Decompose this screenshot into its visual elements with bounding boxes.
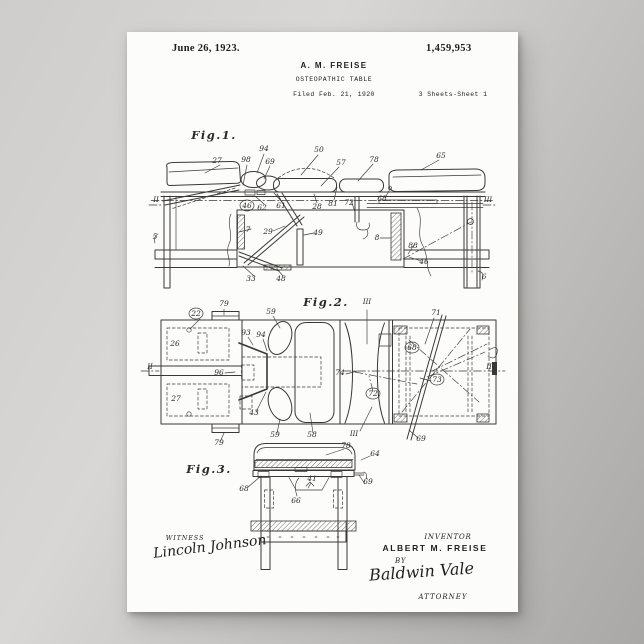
ref-numeral: 68 (239, 484, 249, 493)
figure-3-end-elevation (248, 444, 370, 570)
ref-numeral: 81 (328, 199, 338, 208)
ref-numeral: 73 (432, 375, 442, 384)
ref-numeral: 22 (190, 309, 201, 318)
ref-numeral: 96 (214, 368, 224, 377)
inventor-name: ALBERT M. FREISE (383, 543, 488, 553)
ref-numeral: 79 (219, 299, 229, 308)
ref-numeral: 57 (336, 158, 346, 167)
ref-numeral: 93 (241, 328, 251, 337)
ref-numeral: 69 (265, 157, 275, 166)
ref-numeral: 59 (270, 430, 280, 439)
figure-title: Fig.3. (185, 462, 232, 476)
ref-numeral: 26 (169, 339, 180, 348)
attorney-label: ATTORNEY (418, 593, 467, 601)
ref-numeral: 74 (335, 368, 345, 377)
ref-numeral: 48 (275, 274, 286, 283)
ref-numeral: 69 (416, 434, 426, 443)
ref-numeral: 64 (370, 449, 380, 458)
ref-numeral: 27 (211, 156, 222, 165)
ref-numeral: 79 (214, 438, 224, 447)
ref-numeral: 72 (344, 198, 354, 207)
ref-numeral: 49 (312, 228, 323, 237)
ref-numeral: 98 (241, 155, 251, 164)
patent-drawing: Fig.1.2798946950577865IIIII4662612881726… (127, 32, 518, 612)
ref-numeral: II (146, 363, 153, 371)
ref-numeral: 94 (259, 144, 269, 153)
ref-numeral: III (349, 430, 359, 438)
ref-numeral: III (362, 298, 372, 306)
figure-1-side-elevation (149, 154, 497, 288)
ref-numeral: 69 (363, 477, 373, 486)
ref-numeral: 71 (431, 308, 441, 317)
ref-numeral: 28 (311, 202, 322, 211)
ref-numeral: 88 (408, 241, 418, 250)
ref-numeral: 27 (170, 394, 181, 403)
figure-title: Fig.1. (190, 128, 237, 142)
ref-numeral: 72 (368, 389, 378, 398)
figure-title: Fig.2. (302, 295, 349, 309)
ref-numeral: II (485, 363, 492, 371)
ref-numeral: 68 (377, 194, 387, 203)
ref-numeral: 7 (246, 225, 251, 234)
ref-numeral: 58 (307, 430, 317, 439)
ref-numeral: 68 (407, 343, 417, 352)
ref-numeral: 94 (256, 330, 266, 339)
ref-numeral: II (152, 196, 159, 204)
ref-numeral: 66 (291, 496, 301, 505)
ref-numeral: 65 (436, 151, 446, 160)
ref-numeral: 61 (276, 201, 286, 210)
product-photo-background: { "header": { "date": "June 26, 1923.", … (0, 0, 644, 644)
ref-numeral: 5 (153, 232, 158, 241)
patent-poster: June 26, 1923. 1,459,953 A. M. FREISE OS… (127, 32, 518, 612)
ref-numeral: 59 (266, 307, 276, 316)
ref-numeral: 6 (482, 272, 487, 281)
ref-numeral: 50 (314, 145, 324, 154)
ref-numeral: 46 (241, 201, 252, 210)
ref-numeral: 46 (418, 257, 429, 266)
ref-numeral: 8 (375, 233, 380, 242)
ref-numeral: 43 (248, 408, 259, 417)
ref-numeral: 78 (369, 155, 379, 164)
ref-numeral: III (483, 196, 493, 204)
figure-2-plan-view (141, 309, 505, 442)
ref-numeral: 29 (262, 227, 273, 236)
ref-numeral: 41 (306, 474, 317, 483)
ref-numeral: 78 (341, 441, 351, 450)
ref-numeral: 62 (257, 203, 267, 212)
ref-numeral: 33 (246, 274, 256, 283)
inventor-label: INVENTOR (424, 533, 471, 541)
